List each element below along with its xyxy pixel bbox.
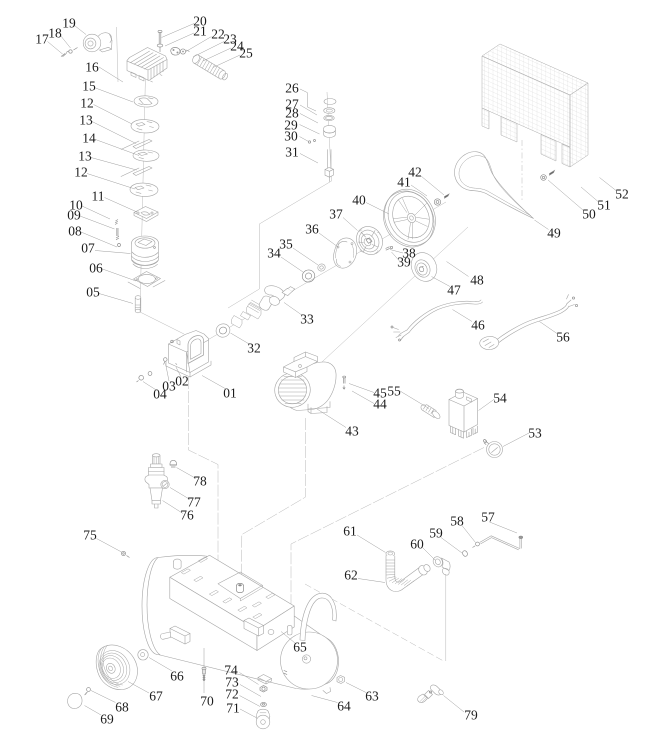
- svg-text:12: 12: [80, 96, 94, 111]
- svg-text:68: 68: [115, 700, 129, 715]
- svg-text:25: 25: [239, 46, 253, 61]
- svg-text:39: 39: [397, 255, 411, 270]
- svg-text:33: 33: [300, 312, 314, 327]
- svg-text:65: 65: [293, 640, 307, 655]
- svg-text:75: 75: [83, 528, 97, 543]
- svg-text:15: 15: [82, 79, 96, 94]
- svg-text:63: 63: [365, 689, 379, 704]
- svg-text:53: 53: [528, 426, 542, 441]
- svg-text:72: 72: [225, 687, 239, 702]
- svg-text:40: 40: [352, 193, 366, 208]
- svg-text:01: 01: [223, 386, 237, 401]
- svg-text:12: 12: [74, 165, 88, 180]
- svg-text:26: 26: [285, 81, 299, 96]
- svg-text:30: 30: [284, 129, 298, 144]
- svg-text:60: 60: [410, 537, 424, 552]
- svg-text:61: 61: [343, 524, 357, 539]
- svg-text:18: 18: [48, 26, 62, 41]
- svg-text:57: 57: [481, 510, 495, 525]
- svg-text:69: 69: [100, 712, 114, 727]
- svg-text:56: 56: [556, 330, 570, 345]
- svg-text:67: 67: [149, 689, 163, 704]
- svg-text:32: 32: [247, 341, 261, 356]
- svg-text:02: 02: [175, 374, 189, 389]
- svg-text:19: 19: [62, 16, 76, 31]
- svg-text:16: 16: [85, 60, 99, 75]
- svg-text:46: 46: [471, 318, 485, 333]
- svg-text:43: 43: [345, 424, 359, 439]
- svg-text:70: 70: [200, 694, 214, 709]
- svg-text:13: 13: [78, 149, 92, 164]
- svg-text:51: 51: [597, 198, 611, 213]
- svg-text:17: 17: [35, 32, 49, 47]
- svg-text:59: 59: [429, 526, 443, 541]
- svg-text:14: 14: [82, 131, 96, 146]
- svg-text:62: 62: [344, 568, 358, 583]
- svg-text:08: 08: [68, 224, 82, 239]
- svg-text:50: 50: [582, 207, 596, 222]
- svg-text:36: 36: [305, 222, 319, 237]
- svg-text:55: 55: [387, 384, 401, 399]
- svg-text:05: 05: [86, 285, 100, 300]
- svg-text:58: 58: [450, 514, 464, 529]
- svg-text:64: 64: [337, 699, 351, 714]
- svg-text:06: 06: [89, 261, 103, 276]
- svg-text:37: 37: [329, 207, 343, 222]
- svg-text:76: 76: [180, 508, 194, 523]
- svg-text:07: 07: [81, 241, 95, 256]
- svg-text:52: 52: [615, 187, 629, 202]
- svg-text:09: 09: [67, 208, 81, 223]
- svg-text:48: 48: [470, 273, 484, 288]
- svg-text:49: 49: [547, 226, 561, 241]
- svg-text:71: 71: [226, 701, 240, 716]
- svg-text:44: 44: [373, 397, 387, 412]
- svg-text:13: 13: [79, 113, 93, 128]
- svg-text:54: 54: [493, 391, 507, 406]
- svg-text:04: 04: [153, 387, 167, 402]
- svg-text:78: 78: [193, 474, 207, 489]
- svg-text:31: 31: [285, 145, 299, 160]
- svg-text:34: 34: [267, 246, 281, 261]
- svg-text:79: 79: [464, 708, 478, 723]
- svg-text:35: 35: [279, 237, 293, 252]
- svg-text:66: 66: [170, 669, 184, 684]
- svg-text:47: 47: [447, 283, 461, 298]
- svg-text:21: 21: [193, 24, 207, 39]
- svg-text:41: 41: [397, 175, 411, 190]
- svg-text:11: 11: [92, 189, 105, 204]
